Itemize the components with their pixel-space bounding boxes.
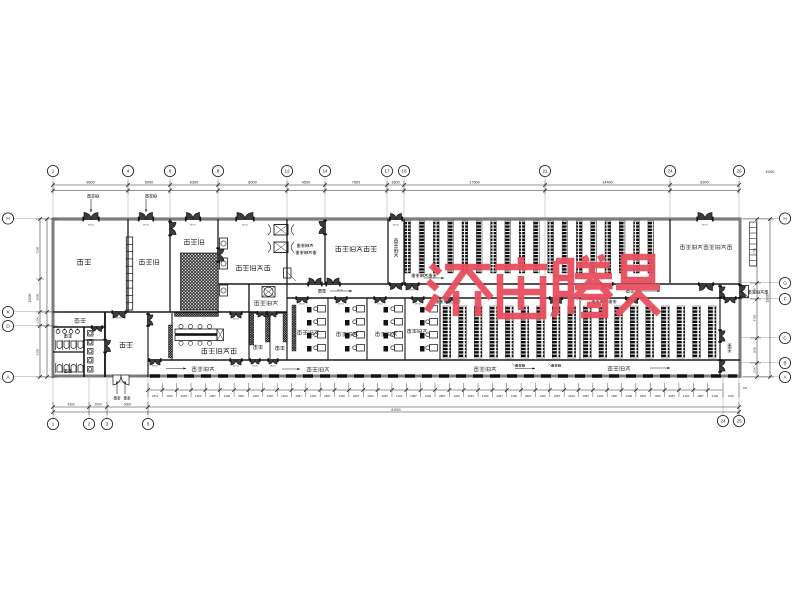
svg-text:M0921: M0921 [252, 366, 259, 368]
svg-text:25: 25 [736, 419, 742, 424]
svg-text:1400: 1400 [252, 394, 259, 398]
svg-text:H: H [783, 216, 786, 221]
svg-text:1800: 1800 [391, 181, 399, 185]
svg-text:M0921: M0921 [299, 304, 306, 306]
svg-text:1400: 1400 [683, 394, 690, 398]
svg-text:1400: 1400 [339, 394, 346, 398]
svg-text:1400: 1400 [568, 394, 575, 398]
svg-text:17500: 17500 [469, 181, 480, 185]
svg-text:2987: 2987 [295, 394, 302, 398]
svg-text:81900: 81900 [391, 408, 400, 412]
svg-text:1400: 1400 [195, 394, 202, 398]
svg-text:1400: 1400 [482, 394, 489, 398]
svg-text:2: 2 [88, 422, 91, 427]
svg-text:4300: 4300 [67, 402, 74, 406]
svg-text:2987: 2987 [554, 394, 561, 398]
svg-text:M0921: M0921 [270, 366, 277, 368]
svg-text:1400: 1400 [310, 394, 317, 398]
svg-text:1400: 1400 [539, 394, 546, 398]
svg-text:1: 1 [52, 422, 55, 427]
svg-text:2987: 2987 [382, 394, 389, 398]
svg-text:1400: 1400 [654, 394, 661, 398]
svg-text:8300: 8300 [700, 181, 708, 185]
svg-text:6300: 6300 [190, 181, 198, 185]
svg-text:M0921: M0921 [702, 225, 709, 227]
svg-text:26: 26 [736, 169, 742, 174]
svg-text:1400: 1400 [511, 394, 518, 398]
svg-text:1400: 1400 [425, 394, 432, 398]
svg-text:2987: 2987 [697, 394, 704, 398]
svg-text:M0921: M0921 [233, 319, 240, 321]
svg-text:G: G [783, 281, 787, 286]
svg-text:5: 5 [147, 422, 150, 427]
svg-text:4: 4 [127, 169, 130, 174]
svg-text:2987: 2987 [669, 394, 676, 398]
svg-text:M0921: M0921 [88, 225, 95, 227]
svg-text:1500: 1500 [753, 367, 757, 373]
svg-text:2512: 2512 [152, 394, 159, 398]
svg-text:M0921: M0921 [338, 304, 345, 306]
svg-text:M0921: M0921 [319, 290, 326, 292]
svg-text:M0921: M0921 [337, 290, 344, 292]
svg-text:1400: 1400 [712, 394, 719, 398]
svg-text:M0921: M0921 [116, 318, 123, 320]
svg-text:2987: 2987 [267, 394, 274, 398]
svg-text:24: 24 [720, 419, 726, 424]
svg-text:2987: 2987 [525, 394, 532, 398]
svg-text:F: F [784, 297, 787, 302]
svg-text:4700: 4700 [753, 314, 757, 321]
svg-text:4500: 4500 [302, 181, 310, 185]
svg-text:H: H [6, 216, 9, 221]
svg-text:5000: 5000 [36, 293, 40, 300]
svg-text:M0921: M0921 [242, 225, 249, 227]
svg-text:M0921: M0921 [233, 366, 240, 368]
svg-text:12: 12 [284, 169, 290, 174]
svg-text:2987: 2987 [582, 394, 589, 398]
svg-text:2987: 2987 [324, 394, 331, 398]
svg-text:3000: 3000 [753, 346, 757, 353]
svg-text:1500: 1500 [728, 394, 734, 398]
svg-text:2987: 2987 [353, 394, 360, 398]
svg-text:5000: 5000 [145, 181, 153, 185]
svg-text:18: 18 [401, 169, 407, 174]
svg-text:2987: 2987 [611, 394, 618, 398]
svg-text:7500: 7500 [352, 181, 360, 185]
svg-text:M0921: M0921 [393, 225, 400, 227]
svg-text:1400: 1400 [453, 394, 460, 398]
svg-text:1500: 1500 [36, 317, 40, 323]
svg-text:8000: 8000 [248, 181, 256, 185]
svg-text:3: 3 [106, 422, 109, 427]
svg-text:1400: 1400 [597, 394, 604, 398]
svg-text:5000: 5000 [124, 402, 131, 406]
svg-text:1400: 1400 [166, 394, 173, 398]
svg-text:2987: 2987 [209, 394, 216, 398]
svg-text:6: 6 [169, 169, 172, 174]
svg-text:M0921: M0921 [377, 304, 384, 306]
svg-text:2987: 2987 [439, 394, 446, 398]
svg-text:19000: 19000 [28, 293, 32, 302]
svg-text:1400: 1400 [367, 394, 374, 398]
svg-text:1400: 1400 [396, 394, 403, 398]
svg-text:M0921: M0921 [409, 290, 416, 292]
svg-text:M0921: M0921 [143, 225, 150, 227]
svg-text:B: B [783, 361, 786, 366]
svg-text:2987: 2987 [640, 394, 647, 398]
svg-text:1: 1 [52, 169, 55, 174]
svg-text:24: 24 [667, 169, 673, 174]
svg-text:2000: 2000 [753, 288, 757, 294]
svg-text:9600: 9600 [86, 181, 94, 185]
svg-text:19000: 19000 [766, 293, 770, 302]
svg-text:81900: 81900 [766, 170, 775, 174]
svg-text:M0921: M0921 [190, 225, 197, 227]
svg-text:1400: 1400 [626, 394, 633, 398]
svg-text:2987: 2987 [496, 394, 503, 398]
svg-text:17: 17 [384, 169, 390, 174]
svg-text:2000: 2000 [94, 402, 101, 406]
svg-text:M0921: M0921 [415, 304, 422, 306]
svg-text:2987: 2987 [468, 394, 475, 398]
svg-text:21: 21 [542, 169, 548, 174]
svg-text:14400: 14400 [602, 181, 613, 185]
svg-text:1400: 1400 [224, 394, 231, 398]
svg-text:6300: 6300 [36, 348, 40, 355]
svg-text:7200: 7200 [36, 246, 40, 253]
svg-text:2987: 2987 [238, 394, 245, 398]
svg-text:8: 8 [217, 169, 220, 174]
svg-text:425: 425 [743, 387, 748, 390]
svg-text:2987: 2987 [181, 394, 188, 398]
svg-text:1400: 1400 [281, 394, 288, 398]
svg-text:14: 14 [322, 169, 328, 174]
svg-text:M0921: M0921 [152, 366, 159, 368]
svg-text:2987: 2987 [410, 394, 417, 398]
svg-text:7700: 7700 [753, 247, 757, 254]
